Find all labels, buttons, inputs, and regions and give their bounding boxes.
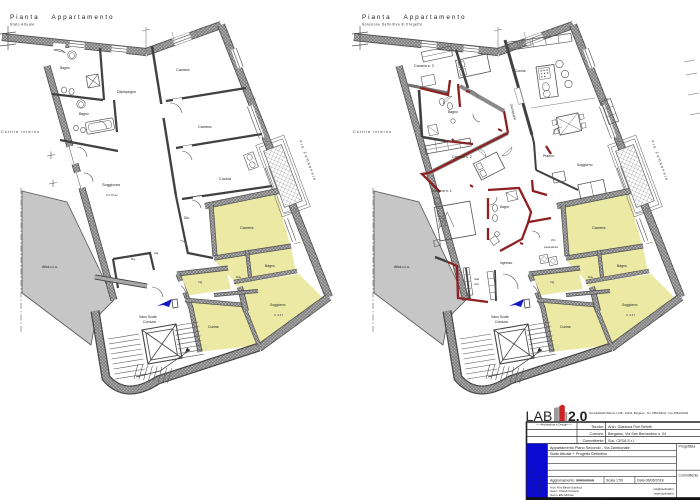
- svg-text:Rg.: Rg.: [131, 257, 136, 261]
- svg-text:Cucina: Cucina: [515, 69, 526, 73]
- svg-text:Via Garibaldini Baroni n.148 -: Via Garibaldini Baroni n.148 - 24122, Be…: [589, 411, 688, 415]
- svg-text:Dis.: Dis.: [184, 216, 190, 220]
- svg-text:Ingresso: Ingresso: [500, 261, 512, 265]
- svg-text:Vano Scale: Vano Scale: [139, 315, 157, 319]
- svg-text:Cab.: Cab.: [474, 277, 480, 281]
- svg-text:W.c.: W.c.: [551, 238, 557, 242]
- svg-text:Geom. Orlandi Cristiano: Geom. Orlandi Cristiano: [550, 489, 579, 493]
- svg-text:Geom. Effe Michela: Geom. Effe Michela: [550, 493, 574, 497]
- svg-text:Camera: Camera: [198, 125, 212, 129]
- svg-text:Via Zambonate: Via Zambonate: [298, 140, 317, 182]
- svg-text:Cucina: Cucina: [219, 177, 232, 181]
- svg-text:Camera n. 1: Camera n. 1: [432, 189, 452, 193]
- svg-text:h. 3.17: h. 3.17: [274, 313, 284, 317]
- svg-text:Comune: Comune: [590, 432, 604, 436]
- svg-text:Bagno: Bagno: [79, 112, 89, 116]
- svg-text:Ing.: Ing.: [154, 251, 159, 255]
- svg-text:Stato Attuale: Stato Attuale: [10, 23, 35, 27]
- svg-text:Cucina: Cucina: [208, 325, 219, 329]
- svg-text:Stato Attuale + Progetto Defin: Stato Attuale + Progetto Definitivo: [550, 452, 607, 456]
- svg-text:Scala 1:50: Scala 1:50: [606, 479, 623, 483]
- svg-text:Disimpegno: Disimpegno: [509, 103, 517, 121]
- svg-text:Bagno: Bagno: [448, 110, 458, 114]
- svg-text:Pianta: Pianta: [362, 14, 392, 21]
- svg-text:Appartamento: Appartamento: [52, 14, 115, 21]
- svg-text:Pianta: Pianta: [10, 14, 40, 21]
- svg-text:Committente: Committente: [679, 474, 699, 478]
- svg-text:www.studiolabi.it: www.studiolabi.it: [654, 492, 674, 496]
- svg-text:Arch. Gianluca Fiori Belotti: Arch. Gianluca Fiori Belotti: [608, 425, 652, 429]
- svg-text:Comune: Comune: [143, 320, 156, 324]
- svg-text:Soluzione Definitiva di Proget: Soluzione Definitiva di Progetto: [362, 23, 422, 27]
- svg-text:Altra u.i.u.: Altra u.i.u.: [42, 265, 58, 269]
- svg-text:Appartamento Piano Secondo - V: Appartamento Piano Secondo - Via Zambona…: [550, 446, 630, 450]
- svg-text:Camera: Camera: [176, 68, 190, 72]
- svg-text:Ing: Ing: [198, 280, 203, 284]
- svg-text:Bergamo, Via San Bernardino n.: Bergamo, Via San Bernardino n. 24: [608, 432, 666, 436]
- svg-text:Soc. CESA S.r.l.: Soc. CESA S.r.l.: [608, 439, 635, 443]
- svg-text:Committente: Committente: [583, 439, 604, 443]
- svg-text:Bagno: Bagno: [500, 205, 509, 209]
- svg-text:Soggiorno: Soggiorno: [270, 303, 286, 307]
- svg-text:Camera n. 2: Camera n. 2: [452, 155, 472, 159]
- svg-text:Disimpegno: Disimpegno: [117, 90, 136, 94]
- svg-text:Soggiorno: Soggiorno: [102, 182, 121, 187]
- svg-text:Tecnico: Tecnico: [591, 425, 604, 429]
- svg-text:Arch. Fiori Belotti Gianluca: Arch. Fiori Belotti Gianluca: [550, 485, 582, 489]
- svg-text:Progettista: Progettista: [679, 445, 696, 449]
- svg-text:Dia.: Dia.: [236, 275, 242, 279]
- svg-text:Cortile Interno: Cortile Interno: [1, 130, 40, 134]
- svg-text:Appartamento: Appartamento: [404, 14, 467, 21]
- svg-text:h 2.70 su: h 2.70 su: [106, 193, 118, 197]
- svg-text:Pranzo: Pranzo: [543, 154, 554, 158]
- svg-text:Architettura e Design: Architettura e Design: [541, 423, 568, 427]
- svg-text:LABI 2.0: LABI 2.0: [538, 475, 542, 493]
- svg-text:N. 2017.041: N. 2017.041: [531, 468, 535, 493]
- svg-text:Data 06/06/2018: Data 06/06/2018: [637, 479, 664, 483]
- svg-text:Bagno: Bagno: [265, 264, 275, 268]
- svg-text:Camera: Camera: [240, 226, 254, 230]
- svg-text:Camera n. 3: Camera n. 3: [414, 64, 434, 68]
- svg-text:Aggiornamento: Aggiornamento: [550, 479, 574, 483]
- svg-text:Soggiorno: Soggiorno: [577, 163, 593, 167]
- svg-text:Arm.: Arm.: [474, 282, 480, 286]
- svg-text:info@studiolabi.it: info@studiolabi.it: [653, 487, 674, 491]
- svg-text:20/01/2019: 20/01/2019: [576, 479, 594, 483]
- svg-text:Bagno: Bagno: [60, 66, 70, 70]
- svg-text:Lavanderia: Lavanderia: [544, 245, 558, 249]
